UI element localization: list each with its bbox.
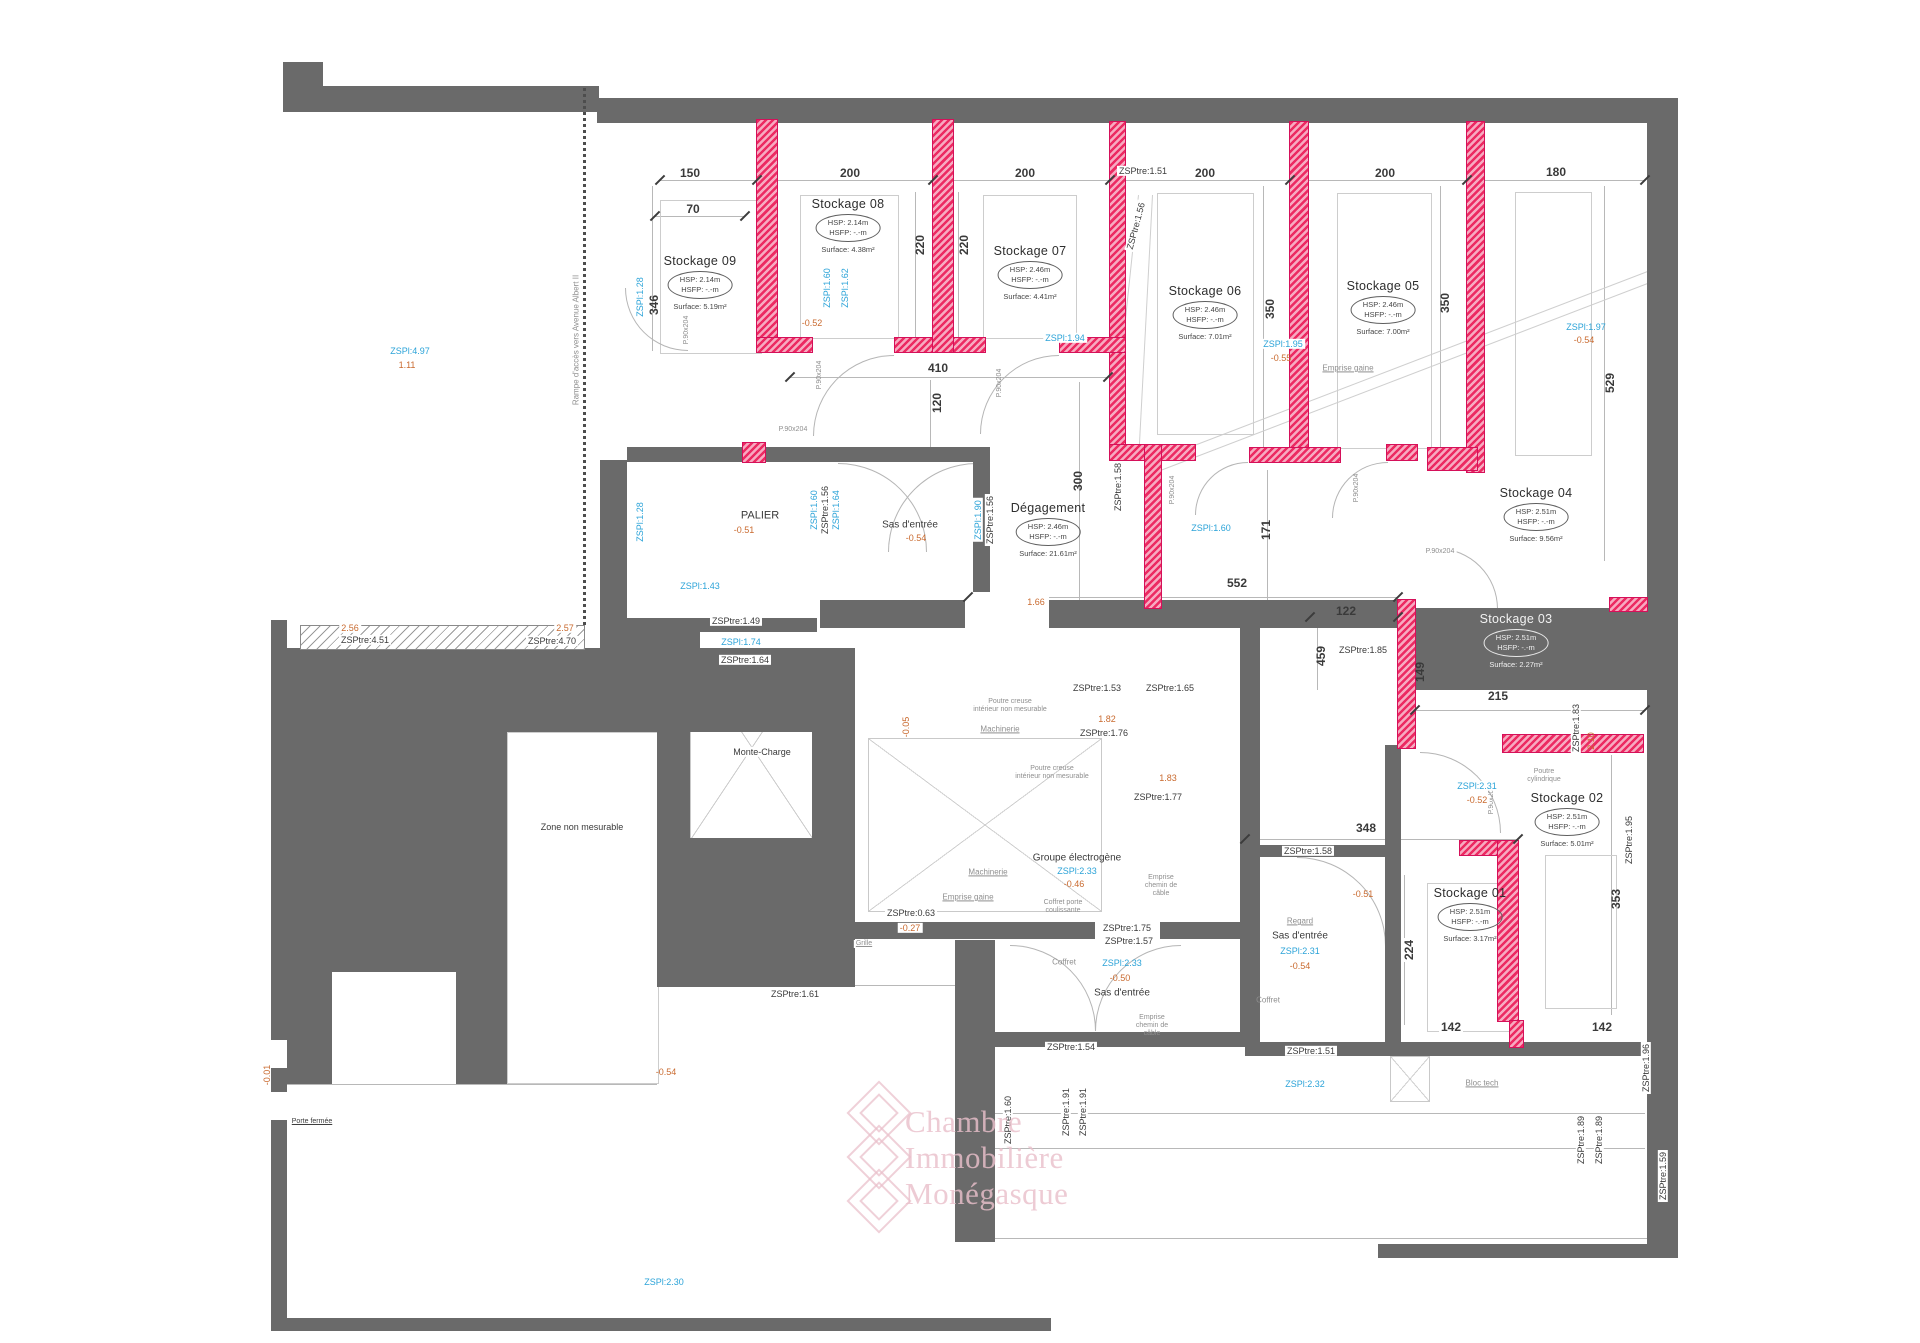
room-hsp-oval: HSP: 2.51mHSFP: -.-m <box>1484 629 1548 657</box>
zspl-1-74: ZSPl:1.74 <box>719 637 763 647</box>
zspl-1-43: ZSPl:1.43 <box>678 581 722 591</box>
zspl-1-97: ZSPl:1.97 <box>1566 322 1606 332</box>
red-partition-wall <box>1428 448 1477 470</box>
monte-charge: Monte-Charge <box>731 747 793 757</box>
dimension-line <box>1415 710 1645 711</box>
zsptre-4-70: ZSPtre:4.70 <box>526 636 578 646</box>
lvl-m054-sas-haut: -0.54 <box>906 533 927 543</box>
room-title: Stockage 03 <box>1480 612 1553 626</box>
door-p90-2: P.90x204 <box>816 361 824 390</box>
watermark-diamond-inner <box>859 1137 899 1177</box>
red-partition-wall <box>1510 1021 1523 1047</box>
zspl-1-60-sas: ZSPl:1.60 <box>809 488 819 532</box>
room-inner-outline <box>1545 855 1617 1009</box>
red-partition-wall <box>1387 445 1417 460</box>
zsptre-1-51-b: ZSPtre:1.51 <box>1285 1046 1337 1056</box>
rampe-acces: Rampe d'accès vers Avenue Albert II <box>571 275 580 405</box>
dim-200-d: 200 <box>1375 167 1395 181</box>
wall-segment <box>955 940 995 1242</box>
wall-segment <box>600 618 817 632</box>
room-hsp-oval: HSP: 2.46mHSFP: -.-m <box>1016 518 1080 546</box>
room-surface: Surface: 3.17m² <box>1434 934 1507 943</box>
machinerie-b: Machinerie <box>968 867 1007 876</box>
poutre-cylindrique: Poutre cylindrique <box>1525 768 1562 784</box>
room-inner-outline <box>507 732 659 1084</box>
room-label-stockage-07: Stockage 07HSP: 2.46mHSFP: -.-mSurface: … <box>994 244 1067 301</box>
wall-segment <box>283 62 323 88</box>
room-hsp: HSP: 2.46m <box>1185 305 1225 315</box>
lvl-m052-b: -0.52 <box>1465 795 1490 805</box>
lvl-2-10: 2.10 <box>1586 732 1596 750</box>
sas-entree-regard: Sas d'entrée <box>1272 930 1328 942</box>
dim-552: 552 <box>1227 577 1247 591</box>
door-p90-6: P.90x204 <box>1424 548 1457 556</box>
zsptre-1-65: ZSPtre:1.65 <box>1144 683 1196 693</box>
door-swing-arc <box>1195 462 1248 515</box>
room-title: Dégagement <box>1011 501 1086 515</box>
machinerie-a: Machinerie <box>980 724 1019 733</box>
lvl-2-56: 2.56 <box>339 623 361 633</box>
zsptre-1-91-a: ZSPtre:1.91 <box>1061 1086 1071 1138</box>
room-hsfp: HSFP: -.-m <box>1516 517 1556 527</box>
zsptre-1-57: ZSPtre:1.57 <box>1103 936 1155 946</box>
zsptre-1-96: ZSPtre:1.96 <box>1641 1042 1651 1094</box>
coffret-porte-coulissante: Coffret porte coulissante <box>1044 899 1083 915</box>
room-title: Stockage 05 <box>1347 279 1420 293</box>
lvl-2-57: 2.57 <box>554 623 576 633</box>
zone-non-mesurable: Zone non mesurable <box>541 822 624 832</box>
wall-segment <box>690 838 812 987</box>
zspl-1-60-s08: ZSPl:1.60 <box>822 268 832 308</box>
red-partition-wall <box>1145 445 1161 608</box>
coffret-c: Coffret <box>1256 995 1280 1004</box>
door-p90-5: P.90x204 <box>1353 474 1361 503</box>
room-hsfp: HSFP: -.-m <box>1450 917 1490 927</box>
room-hsp: HSP: 2.14m <box>828 218 868 228</box>
dimension-line <box>915 192 916 342</box>
dimension-line <box>1245 839 1518 840</box>
room-title: Stockage 07 <box>994 244 1067 258</box>
room-title: Stockage 06 <box>1169 284 1242 298</box>
door-swing-arc <box>1437 548 1498 609</box>
room-title: Stockage 02 <box>1531 791 1604 805</box>
room-title: Stockage 08 <box>812 197 885 211</box>
room-hsp: HSP: 2.46m <box>1028 522 1068 532</box>
room-hsfp: HSFP: -.-m <box>1010 275 1050 285</box>
dim-142-a: 142 <box>1439 1021 1463 1035</box>
red-partition-wall <box>757 120 777 350</box>
dim-200-c: 200 <box>1195 167 1215 181</box>
zspl-1-94: ZSPl:1.94 <box>1043 333 1087 343</box>
lvl-m054-bas: -0.54 <box>656 1067 677 1077</box>
zspl-1-64-sas: ZSPl:1.64 <box>831 488 841 532</box>
room-label-stockage-03: Stockage 03HSP: 2.51mHSFP: -.-mSurface: … <box>1480 612 1553 669</box>
emprise-gaine-b: Emprise gaine <box>942 892 993 901</box>
dim-353: 353 <box>1610 889 1624 909</box>
zspl-2-31-a: ZSPl:2.31 <box>1280 946 1320 956</box>
wall-segment <box>657 732 690 987</box>
room-hsp-oval: HSP: 2.14mHSFP: -.-m <box>668 271 732 299</box>
zsptre-1-54: ZSPtre:1.54 <box>1045 1042 1097 1052</box>
coffret-b: Coffret <box>1052 957 1076 966</box>
wall-opening <box>271 1040 287 1068</box>
room-hsp-oval: HSP: 2.51mHSFP: -.-m <box>1504 503 1568 531</box>
wall-opening <box>271 1092 287 1120</box>
dim-410: 410 <box>928 362 948 376</box>
zsptre-1-60-v: ZSPtre:1.60 <box>1003 1094 1013 1146</box>
room-surface: Surface: 9.56m² <box>1500 534 1573 543</box>
zsptre-1-64: ZSPtre:1.64 <box>719 655 771 665</box>
dim-180: 180 <box>1546 166 1566 180</box>
wall-segment <box>820 600 968 628</box>
wall-opening <box>332 972 456 1084</box>
zsptre-1-85: ZSPtre:1.85 <box>1337 645 1389 655</box>
room-hsp-oval: HSP: 2.46mHSFP: -.-m <box>1351 296 1415 324</box>
lvl-m054-s04: -0.54 <box>1574 335 1595 345</box>
zspl-1-90: ZSPl:1.90 <box>973 498 983 542</box>
dim-200-a: 200 <box>840 167 860 181</box>
dim-348: 348 <box>1356 822 1376 836</box>
wall-segment <box>600 460 627 622</box>
room-hsp: HSP: 2.46m <box>1363 300 1403 310</box>
dim-220-a: 220 <box>914 235 928 255</box>
room-label-degagement: DégagementHSP: 2.46mHSFP: -.-mSurface: 2… <box>1011 501 1086 558</box>
wall-segment <box>855 922 1095 939</box>
zspl-1-62-s08: ZSPl:1.62 <box>840 268 850 308</box>
lvl-1-11: 1.11 <box>399 360 416 370</box>
door-p90-3: P.90x204 <box>996 369 1004 398</box>
dim-350-a: 350 <box>1264 299 1278 319</box>
lvl-1-83: 1.83 <box>1157 773 1179 783</box>
zspl-2-31-b: ZSPl:2.31 <box>1455 781 1499 791</box>
zsptre-1-89-b: ZSPtre:1.89 <box>1594 1114 1604 1166</box>
room-hsfp: HSFP: -.-m <box>1496 643 1536 653</box>
dim-529: 529 <box>1604 373 1618 393</box>
wall-segment <box>271 620 287 1330</box>
red-partition-wall <box>757 338 812 352</box>
wall-segment <box>1385 745 1401 1045</box>
wall-segment <box>600 632 700 677</box>
room-hsfp: HSFP: -.-m <box>1185 315 1225 325</box>
door-p90-1: P.90x204 <box>683 316 691 345</box>
room-label-stockage-09: Stockage 09HSP: 2.14mHSFP: -.-mSurface: … <box>664 254 737 311</box>
red-partition-wall <box>743 443 765 462</box>
room-hsp: HSP: 2.46m <box>1010 265 1050 275</box>
zsptre-1-61: ZSPtre:1.61 <box>769 989 821 999</box>
zsptre-1-53: ZSPtre:1.53 <box>1071 683 1123 693</box>
dimension-line <box>995 1238 1647 1239</box>
wall-segment <box>995 1032 1245 1047</box>
dimension-line <box>995 1113 1645 1114</box>
room-hsp: HSP: 2.14m <box>680 275 720 285</box>
door-p90-4: P.90x204 <box>1169 476 1177 505</box>
room-hsp-oval: HSP: 2.14mHSFP: -.-m <box>816 214 880 242</box>
room-title: Stockage 04 <box>1500 486 1573 500</box>
groupe-electrogene: Groupe électrogène <box>1033 852 1121 864</box>
zsptre-1-95-v: ZSPtre:1.95 <box>1624 814 1634 866</box>
wall-segment <box>283 86 599 112</box>
zsptre-1-83: ZSPtre:1.83 <box>1571 702 1581 754</box>
zspl-1-28-palier: ZSPl:1.28 <box>635 502 645 542</box>
dimension-line <box>958 192 959 342</box>
room-surface: Surface: 7.01m² <box>1169 332 1242 341</box>
zsptre-1-56-diag: ZSPtre:1.56 <box>1124 200 1147 253</box>
floor-plan: 15070200200ZSPtre:1.51200200180346ZSPl:1… <box>0 0 1920 1343</box>
dim-171: 171 <box>1260 520 1274 540</box>
lvl-m001: -0.01 <box>262 1065 272 1086</box>
room-label-stockage-04: Stockage 04HSP: 2.51mHSFP: -.-mSurface: … <box>1500 486 1573 543</box>
emprise-gaine-s05: Emprise gaine <box>1322 363 1373 372</box>
room-surface: Surface: 5.19m² <box>664 302 737 311</box>
lvl-1-66: 1.66 <box>1025 597 1047 607</box>
zsptre-1-58-mur: ZSPtre:1.58 <box>1113 461 1123 513</box>
dim-120: 120 <box>931 393 945 413</box>
lvl-m050: -0.50 <box>1110 973 1131 983</box>
dimension-line <box>995 1148 1645 1149</box>
lvl-m005: -0.05 <box>901 717 911 738</box>
zsptre-1-49: ZSPtre:1.49 <box>710 616 762 626</box>
red-partition-wall <box>1290 122 1308 462</box>
zspl-1-95: ZSPl:1.95 <box>1261 339 1305 349</box>
door-p90-8: P.90x204 <box>779 426 808 434</box>
room-hsp-oval: HSP: 2.51mHSFP: -.-m <box>1535 808 1599 836</box>
dimension-line <box>287 1084 657 1085</box>
zsptre-1-76: ZSPtre:1.76 <box>1078 728 1130 738</box>
room-hsp: HSP: 2.51m <box>1547 812 1587 822</box>
watermark-diamond-inner <box>859 1181 899 1221</box>
red-partition-wall <box>1610 598 1647 611</box>
dimension-line <box>930 380 931 450</box>
room-label-stockage-08: Stockage 08HSP: 2.14mHSFP: -.-mSurface: … <box>812 197 885 254</box>
zsptre-4-51: ZSPtre:4.51 <box>339 635 391 645</box>
zsptre-1-58-b: ZSPtre:1.58 <box>1282 846 1334 856</box>
dim-459: 459 <box>1315 646 1329 666</box>
room-surface: Surface: 2.27m² <box>1480 660 1553 669</box>
lvl-m027: -0.27 <box>898 923 923 933</box>
zsptre-1-77: ZSPtre:1.77 <box>1132 792 1184 802</box>
zspl-2-33-a: ZSPl:2.33 <box>1057 866 1097 876</box>
dim-122: 122 <box>1336 605 1356 619</box>
dim-224: 224 <box>1403 938 1417 962</box>
grille: Grille <box>854 940 874 948</box>
room-hsfp: HSFP: -.-m <box>1028 532 1068 542</box>
zspl-1-60-deg: ZSPl:1.60 <box>1191 523 1231 533</box>
sas-entree-haut: Sas d'entrée <box>882 519 938 531</box>
red-partition-wall <box>1250 448 1340 462</box>
watermark-diamond-inner <box>859 1093 899 1133</box>
lvl-m046: -0.46 <box>1064 879 1085 889</box>
watermark-diamond <box>846 1080 911 1145</box>
zspl-4-97: ZSPl:4.97 <box>390 346 430 356</box>
watermark-diamond <box>846 1124 911 1189</box>
room-hsp-oval: HSP: 2.46mHSFP: -.-m <box>1173 301 1237 329</box>
zsptre-1-59: ZSPtre:1.59 <box>1658 1150 1668 1202</box>
lvl-m051-palier: -0.51 <box>734 525 755 535</box>
zsptre-1-91-b: ZSPtre:1.91 <box>1078 1086 1088 1138</box>
room-surface: Surface: 21.61m² <box>1011 549 1086 558</box>
palier: PALIER <box>741 510 779 523</box>
zsptre-1-51-top: ZSPtre:1.51 <box>1117 166 1169 176</box>
porte-fermee: Porte fermée <box>290 1118 334 1126</box>
dim-215: 215 <box>1488 690 1508 704</box>
crossed-area <box>1390 1056 1430 1102</box>
dim-70: 70 <box>686 203 699 217</box>
room-hsp: HSP: 2.51m <box>1496 633 1536 643</box>
dim-346: 346 <box>648 295 662 315</box>
poutre-creuse-a: Poutre creuse intérieur non mesurable <box>973 698 1047 714</box>
dim-142-b: 142 <box>1590 1021 1614 1035</box>
ramp-slope-line <box>1138 195 1153 457</box>
lvl-m054-regard: -0.54 <box>1290 961 1311 971</box>
emprise-chemin-b: Emprise chemin de câble <box>1136 1014 1168 1038</box>
door-swing-arc <box>813 355 894 436</box>
door-swing-arc <box>888 463 977 552</box>
zspl-2-30: ZSPl:2.30 <box>644 1277 684 1287</box>
dim-150: 150 <box>680 167 700 181</box>
dimension-line <box>1440 186 1441 452</box>
dim-220-b: 220 <box>958 235 972 255</box>
bloc-tech: Bloc tech <box>1466 1078 1499 1087</box>
door-swing-arc <box>980 355 1059 434</box>
sas-entree-bas: Sas d'entrée <box>1094 987 1150 999</box>
wall-segment <box>1160 922 1242 939</box>
zsptre-1-56-c: ZSPtre:1.56 <box>985 494 995 546</box>
room-hsfp: HSFP: -.-m <box>828 228 868 238</box>
lvl-m051-regard: -0.51 <box>1353 889 1374 899</box>
lvl-m055-s06: -0.55 <box>1271 353 1292 363</box>
room-hsp-oval: HSP: 2.51mHSFP: -.-m <box>1438 903 1502 931</box>
room-hsp: HSP: 2.51m <box>1516 507 1556 517</box>
poutre-creuse-b: Poutre creuse intérieur non mesurable <box>1015 765 1089 781</box>
room-title: Stockage 01 <box>1434 886 1507 900</box>
zspl-2-33-b: ZSPl:2.33 <box>1102 958 1142 968</box>
dim-300: 300 <box>1072 471 1086 491</box>
room-hsfp: HSFP: -.-m <box>1363 310 1403 320</box>
lvl-m052-s08: -0.52 <box>802 318 823 328</box>
wall-segment <box>627 447 990 462</box>
room-surface: Surface: 4.41m² <box>994 292 1067 301</box>
red-partition-wall <box>1460 841 1498 855</box>
wall-segment <box>271 1318 1051 1331</box>
zspl-1-28-s09: ZSPl:1.28 <box>635 277 645 317</box>
room-hsp: HSP: 2.51m <box>1450 907 1490 917</box>
zsptre-1-56-sas: ZSPtre:1.56 <box>820 484 830 536</box>
zsptre-0-63: ZSPtre:0.63 <box>885 908 937 918</box>
dim-149: 149 <box>1414 662 1428 682</box>
room-surface: Surface: 7.00m² <box>1347 327 1420 336</box>
regard: Regard <box>1287 916 1313 925</box>
zspl-2-32: ZSPl:2.32 <box>1285 1079 1325 1089</box>
wall-segment <box>1647 98 1678 1258</box>
room-label-stockage-05: Stockage 05HSP: 2.46mHSFP: -.-mSurface: … <box>1347 279 1420 336</box>
watermark-diamond <box>846 1168 911 1233</box>
room-surface: Surface: 4.38m² <box>812 245 885 254</box>
dim-200-b: 200 <box>1015 167 1035 181</box>
wall-segment <box>1378 1244 1647 1258</box>
room-hsp-oval: HSP: 2.46mHSFP: -.-m <box>998 261 1062 289</box>
wall-segment <box>843 648 855 985</box>
room-label-stockage-02: Stockage 02HSP: 2.51mHSFP: -.-mSurface: … <box>1531 791 1604 848</box>
room-hsfp: HSFP: -.-m <box>1547 822 1587 832</box>
room-label-stockage-06: Stockage 06HSP: 2.46mHSFP: -.-mSurface: … <box>1169 284 1242 341</box>
room-hsfp: HSFP: -.-m <box>680 285 720 295</box>
room-surface: Surface: 5.01m² <box>1531 839 1604 848</box>
zs ptre-1-89-a: ZSPtre:1.89 <box>1576 1114 1586 1166</box>
dimension-line <box>660 180 1645 181</box>
room-title: Stockage 09 <box>664 254 737 268</box>
room-label-stockage-01: Stockage 01HSP: 2.51mHSFP: -.-mSurface: … <box>1434 886 1507 943</box>
zsptre-1-75: ZSPtre:1.75 <box>1101 923 1153 933</box>
lvl-1-82: 1.82 <box>1096 714 1118 724</box>
red-partition-wall <box>933 120 953 352</box>
dim-350-b: 350 <box>1439 293 1453 313</box>
ramp-boundary-dotted-line <box>583 88 586 625</box>
emprise-chemin-a: Emprise chemin de câble <box>1145 874 1177 898</box>
